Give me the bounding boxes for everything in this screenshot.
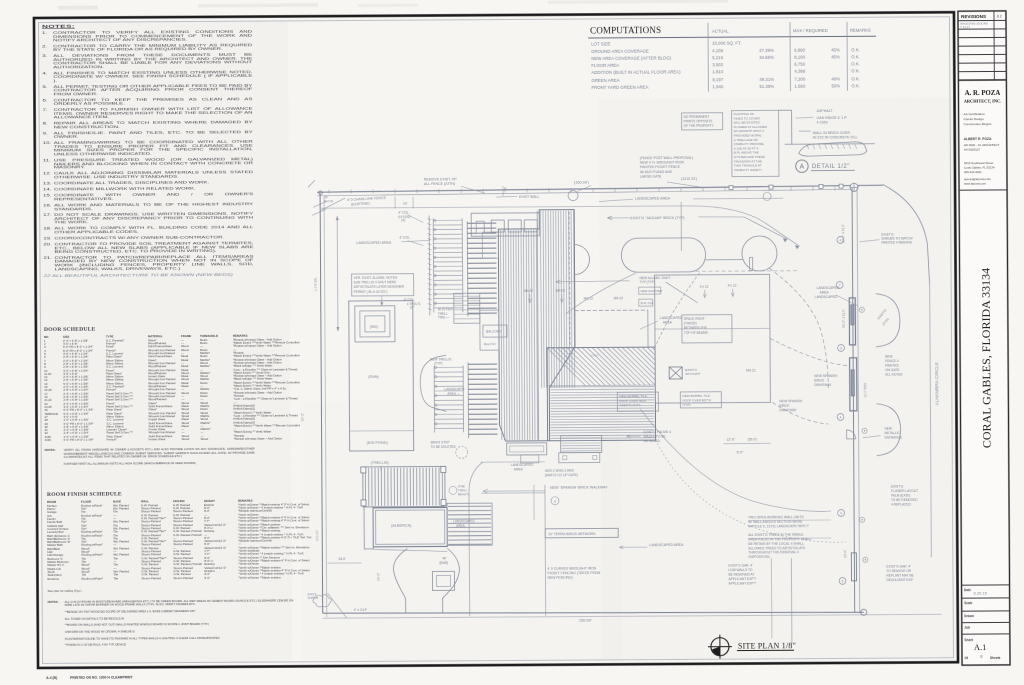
svg-text:ALBERT R. POZA: ALBERT R. POZA <box>964 137 992 141</box>
svg-text:Interior Design: Interior Design <box>964 117 984 121</box>
svg-text:Drawn: Drawn <box>964 614 974 618</box>
svg-text:305.444.4321: 305.444.4321 <box>964 170 982 174</box>
svg-text:AR 0091 - FL ARCHITECT: AR 0091 - FL ARCHITECT <box>964 143 1000 147</box>
svg-text:Coral Gables, FL 33134: Coral Gables, FL 33134 <box>964 165 995 169</box>
svg-text:PRINTED ON NO. 1000 H CLEARPRI: PRINTED ON NO. 1000 H CLEARPRINT <box>70 675 134 679</box>
svg-text:A. R. POZA: A. R. POZA <box>965 90 1001 97</box>
svg-text:Date: Date <box>964 588 971 592</box>
svg-text:7.14.17: 7.14.17 <box>960 25 970 29</box>
svg-text:REVISIONS: REVISIONS <box>961 14 986 19</box>
svg-text:CORAL GABLES, FLORIDA 33134: CORAL GABLES, FLORIDA 33134 <box>979 268 994 448</box>
svg-text:Sheets: Sheets <box>990 656 1001 660</box>
svg-text:5.20.15: 5.20.15 <box>974 591 988 596</box>
svg-text:arpoza@arpoza.com: arpoza@arpoza.com <box>964 177 991 181</box>
svg-text:A.1: A.1 <box>974 642 987 652</box>
svg-text:Construction Mngmt: Construction Mngmt <box>964 122 992 126</box>
svg-text:AA 0003127: AA 0003127 <box>964 148 981 152</box>
svg-text:Scale: Scale <box>964 601 973 605</box>
svg-text:9: 9 <box>980 654 983 659</box>
svg-text:Job: Job <box>964 626 970 630</box>
svg-text:6.2: 6.2 <box>997 14 1002 18</box>
svg-text:AA Certification: AA Certification <box>964 112 985 116</box>
svg-text:Sheet: Sheet <box>964 638 974 642</box>
svg-text:ARCHITECT, INC.: ARCHITECT, INC. <box>964 98 1002 103</box>
svg-text:www.arpoza.com: www.arpoza.com <box>964 182 987 186</box>
svg-text:A-4 (B): A-4 (B) <box>46 676 57 680</box>
